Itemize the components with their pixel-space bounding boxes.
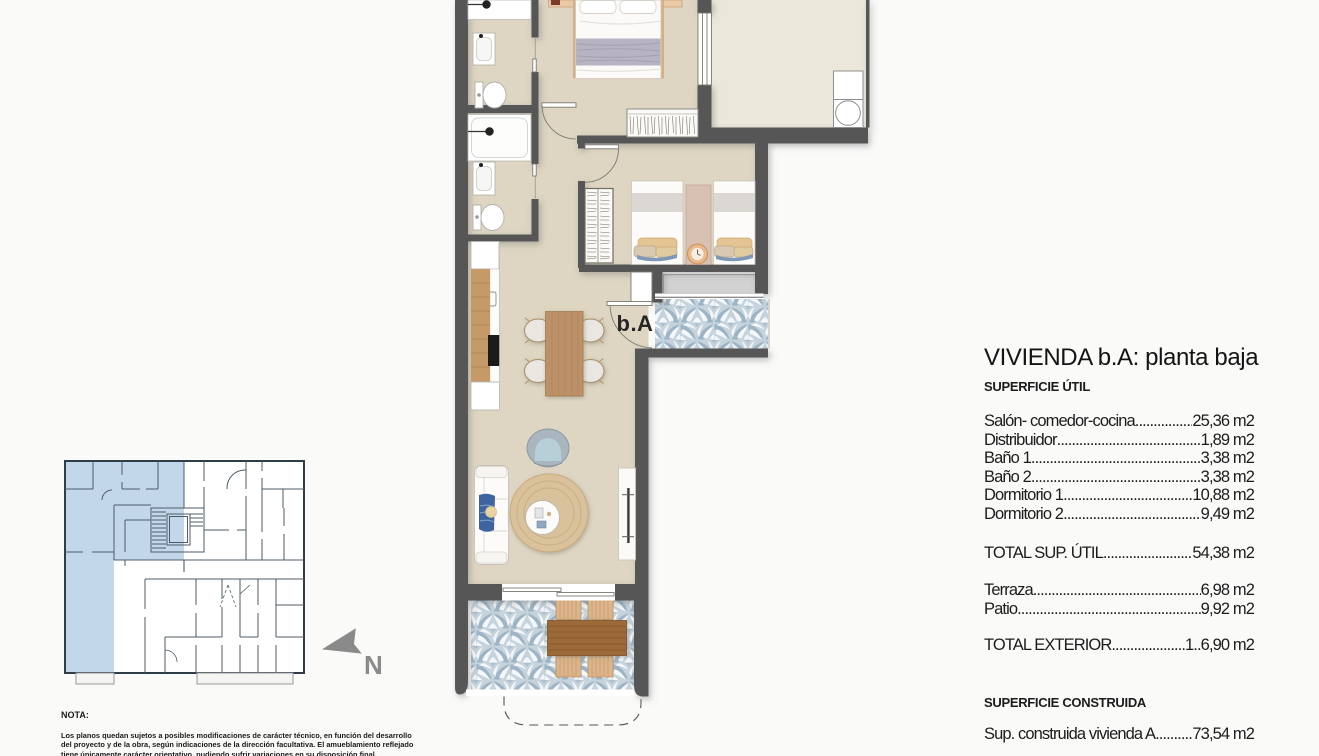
svg-text:N: N <box>364 650 383 680</box>
svg-text:b.A: b.A <box>617 311 654 336</box>
